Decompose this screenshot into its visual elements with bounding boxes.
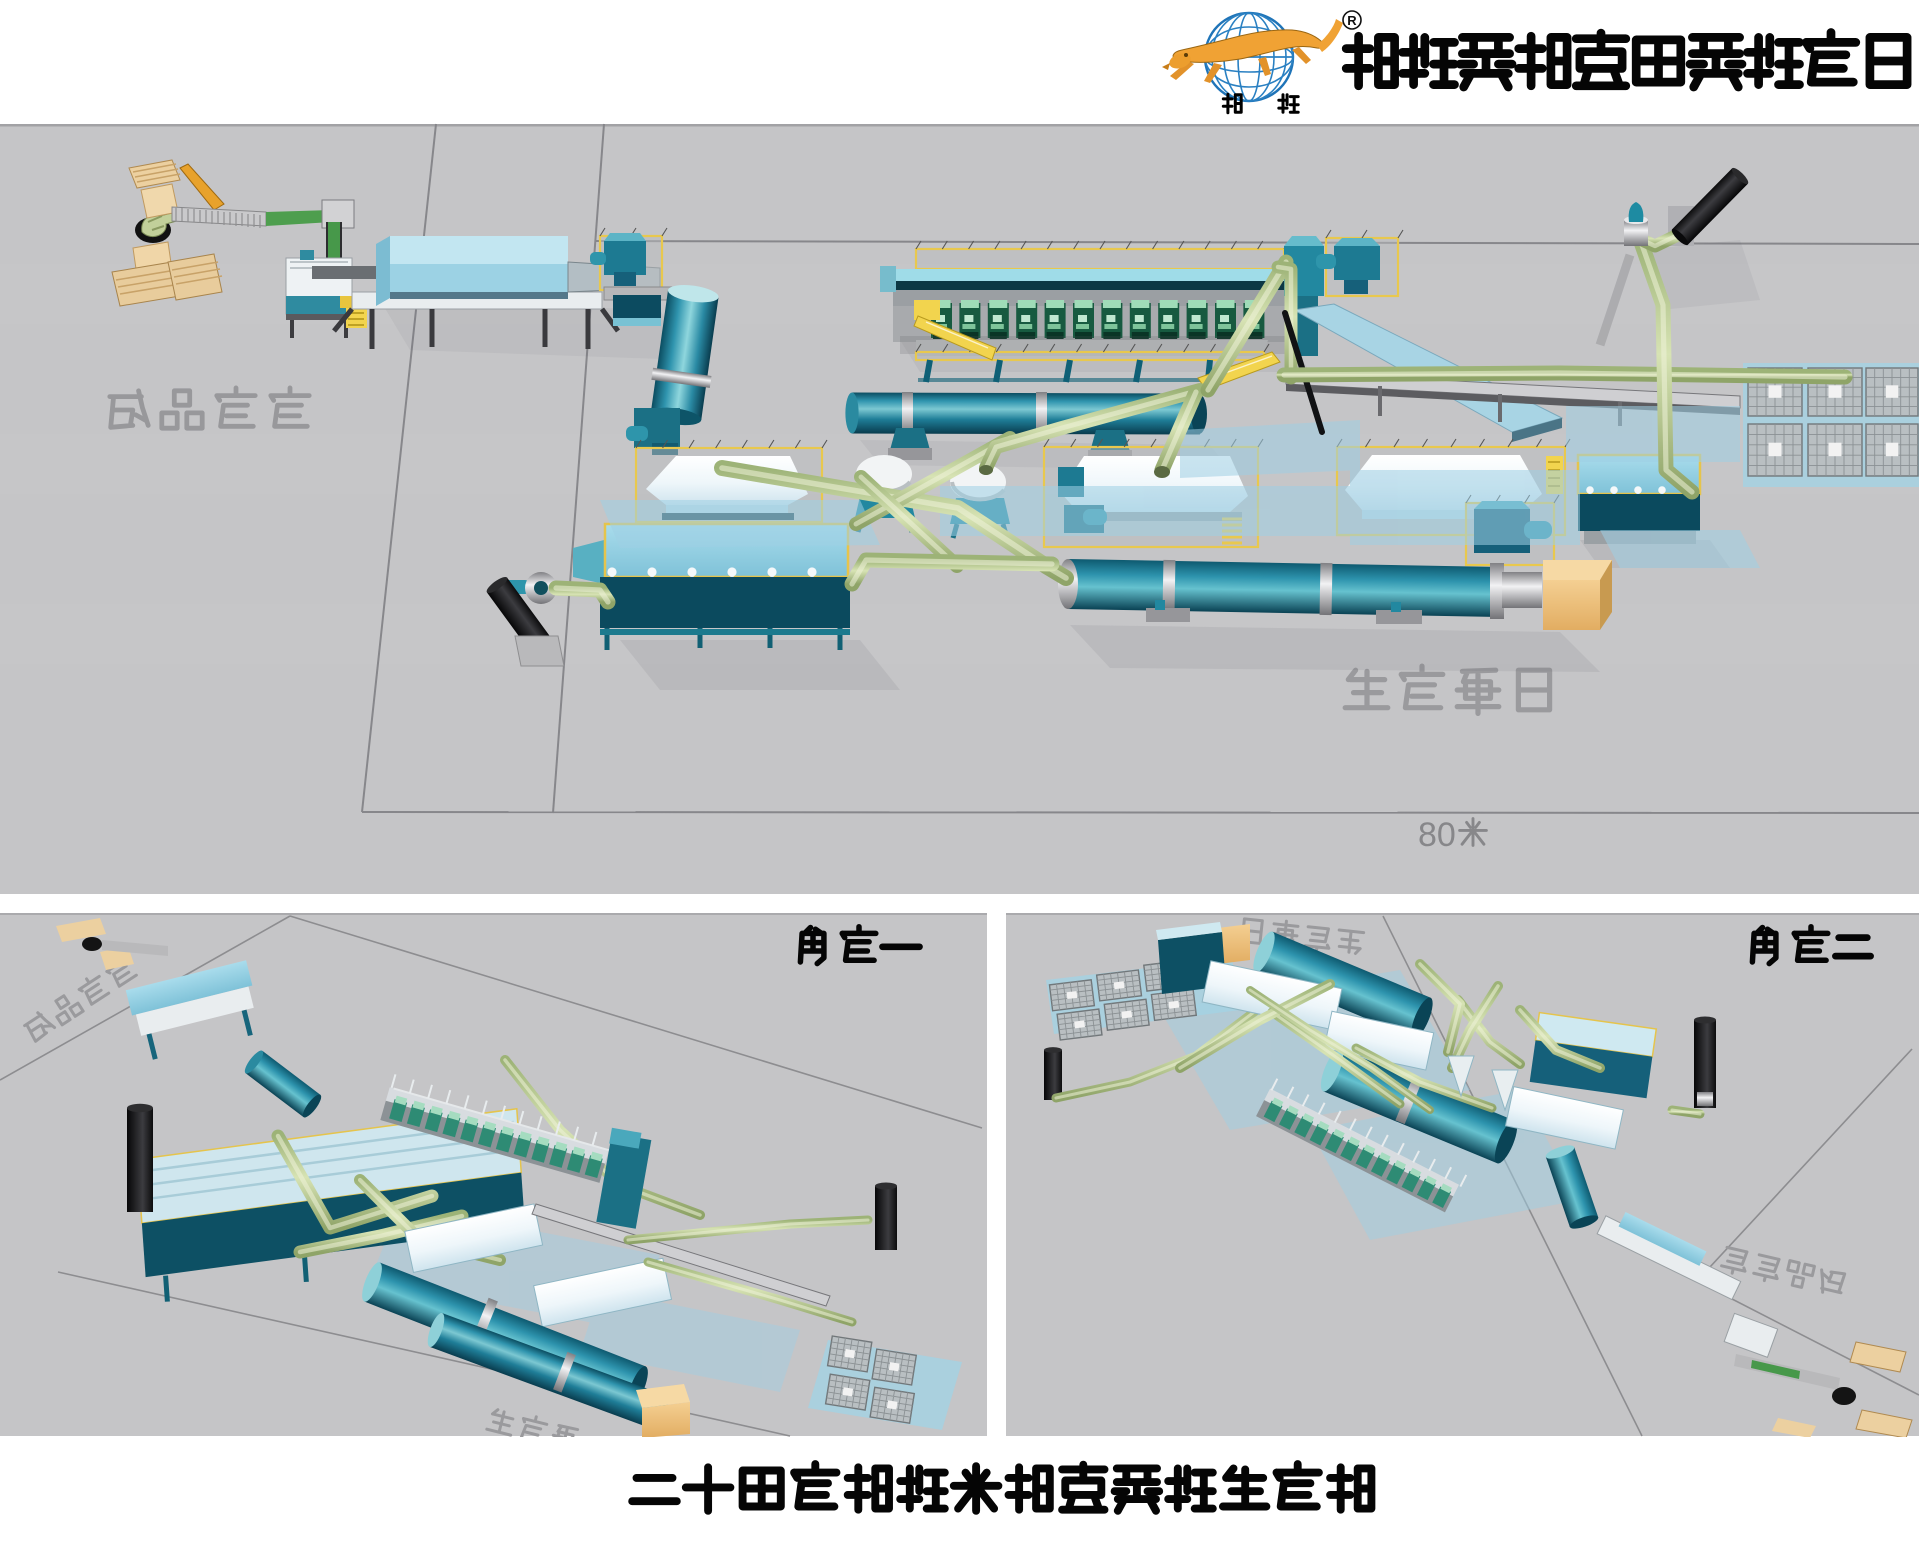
svg-text:R: R — [1347, 13, 1357, 28]
svg-text:80: 80 — [1418, 816, 1456, 854]
